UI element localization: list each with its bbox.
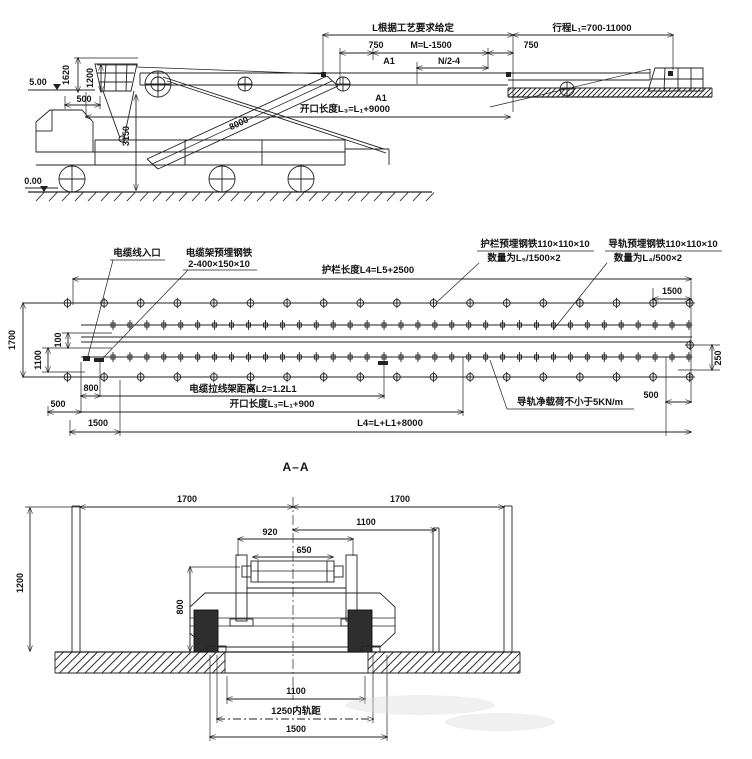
note-guard-embed-1: 护栏预埋钢铁110×110×10 — [480, 238, 589, 250]
dim-label-v100: 100 — [53, 332, 63, 347]
dim-label-b800: 800 — [83, 383, 98, 393]
rail-embeds-row2 — [110, 352, 693, 362]
note-cable-rack-1: 电缆架预埋钢铁 — [186, 247, 253, 259]
dim-label-r500: 500 — [643, 390, 658, 400]
dim-label-500: 500 — [76, 94, 91, 104]
dim-label-l4: L4=L+L1+8000 — [357, 418, 423, 429]
level-ground-label: 0.00 — [24, 176, 42, 186]
level-top-label: 5.00 — [29, 77, 47, 87]
note-rail-embed-1: 导轨预埋钢铁110×110×10 — [608, 238, 717, 250]
dim-label-a1-lower: A1 — [375, 93, 387, 103]
note-rail-embed-2: 数量为L₄/500×2 — [613, 252, 682, 264]
rail-embeds-row1 — [110, 320, 693, 330]
dim-label-given-length: L根据工艺要求给定 — [372, 22, 454, 34]
truck — [36, 110, 389, 192]
main-boom — [147, 76, 338, 169]
dim-label-a1-upper: A1 — [383, 56, 395, 66]
dim-label-b1500: 1500 — [286, 724, 306, 734]
dim-label-right-1500: 1500 — [662, 286, 682, 296]
dim-label-1200: 1200 — [85, 68, 95, 88]
level-ground-marker-icon — [40, 186, 48, 192]
plan-view: 护栏长度L4=L5+2500 1500 电缆线入口 电缆架预埋钢铁 2-400×… — [7, 238, 723, 436]
trolley-section — [190, 555, 395, 652]
dim-label-b1100: 1100 — [286, 686, 306, 696]
dim-label-gauge: 1250内轨距 — [271, 705, 321, 717]
dim-label-r250: 250 — [713, 350, 723, 365]
dim-label-1700-left: 1700 — [177, 494, 197, 504]
note-guard-embed-2: 数量为L₅/1500×2 — [486, 252, 560, 264]
dim-label-v1100: 1100 — [33, 350, 43, 370]
watermark — [345, 695, 555, 731]
dim-label-750-right: 750 — [523, 40, 538, 50]
section-structure — [34, 506, 538, 673]
dim-label-h800: 800 — [175, 599, 185, 614]
dim-label-opening: 开口长度L₃=L₁+9000 — [300, 103, 390, 115]
dim-label-t920: 920 — [262, 527, 277, 537]
note-cable-rack-2: 2-400×150×10 — [188, 259, 250, 270]
dim-label-b1500: 1500 — [88, 418, 108, 428]
elevation-view: L根据工艺要求给定 行程L₁=700-11000 750 M=L-1500 75… — [24, 22, 716, 201]
dim-label-plan-opening: 开口长度L₃=L₁+900 — [230, 398, 315, 410]
floor-hatch-left — [34, 652, 242, 673]
dim-label-750-left: 750 — [368, 40, 383, 50]
section-title: A–A — [282, 460, 309, 474]
dim-label-guard-length: 护栏长度L4=L5+2500 — [322, 264, 414, 276]
dim-label-b500: 500 — [50, 399, 65, 409]
level-top-marker-icon — [53, 84, 61, 90]
dim-label-v1700: 1700 — [7, 330, 17, 350]
plan-left-dims: 1700 1100 100 — [7, 303, 112, 377]
elevation-dimensions: L根据工艺要求给定 行程L₁=700-11000 750 M=L-1500 75… — [24, 22, 673, 192]
floor-hatch-right — [347, 652, 538, 673]
dim-label-n-eq: N/2-4 — [438, 56, 460, 66]
engineering-drawing: L根据工艺要求给定 行程L₁=700-11000 750 M=L-1500 75… — [0, 0, 752, 759]
note-cable-entry: 电缆线入口 — [113, 247, 161, 259]
ground-hatch — [36, 193, 434, 202]
truck-wheels — [59, 166, 314, 192]
dim-label-t650: 650 — [296, 545, 311, 555]
section-view: A–A — [15, 460, 555, 741]
dim-label-h1200: 1200 — [15, 573, 25, 593]
dim-label-travel: 行程L₁=700-11000 — [551, 22, 631, 34]
dim-label-1700-right: 1700 — [390, 494, 410, 504]
mobile-stacker-machine — [28, 64, 716, 201]
dim-label-1620: 1620 — [61, 65, 71, 85]
deck-hatch — [502, 88, 716, 97]
dim-label-m-eq: M=L-1500 — [410, 40, 451, 50]
dim-label-cable-stay: 电缆拉线架距离L2=1.2L1 — [189, 383, 297, 395]
dim-label-t1100: 1100 — [356, 517, 376, 527]
note-rail-load: 导轨净载荷不小于5KN/m — [517, 396, 623, 408]
drawing-page: L根据工艺要求给定 行程L₁=700-11000 750 M=L-1500 75… — [0, 0, 752, 759]
